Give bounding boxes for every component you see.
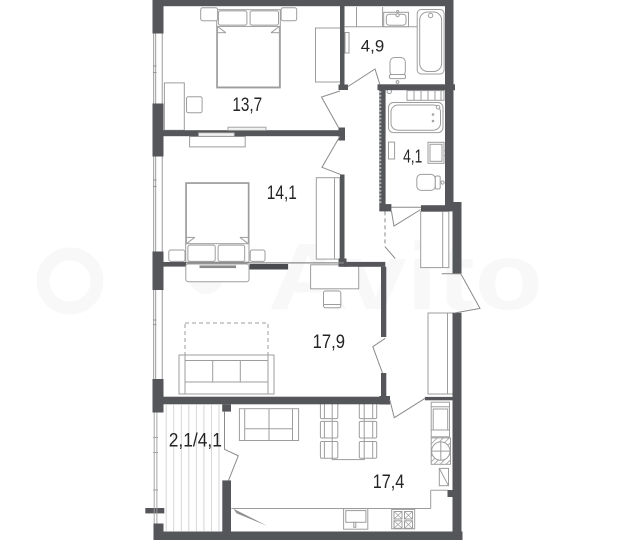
svg-text:2,1/4,1: 2,1/4,1: [169, 431, 222, 452]
svg-text:Avito: Avito: [268, 224, 543, 330]
svg-text:17,9: 17,9: [313, 332, 345, 353]
svg-text:4,9: 4,9: [361, 37, 384, 56]
svg-text:17,4: 17,4: [373, 471, 405, 493]
svg-text:4,1: 4,1: [403, 146, 422, 167]
svg-text:13,7: 13,7: [232, 94, 262, 116]
svg-text:14,1: 14,1: [267, 182, 297, 204]
